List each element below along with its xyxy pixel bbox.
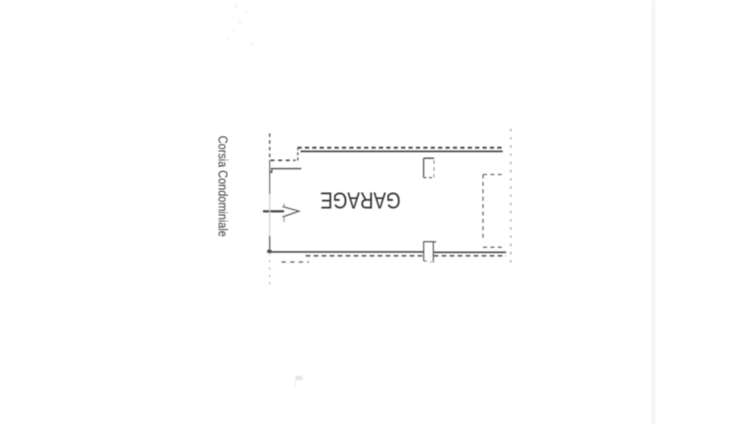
svg-text:Corsia Condominiale: Corsia Condominiale [216,136,231,237]
svg-text:GARAGE: GARAGE [320,187,401,213]
